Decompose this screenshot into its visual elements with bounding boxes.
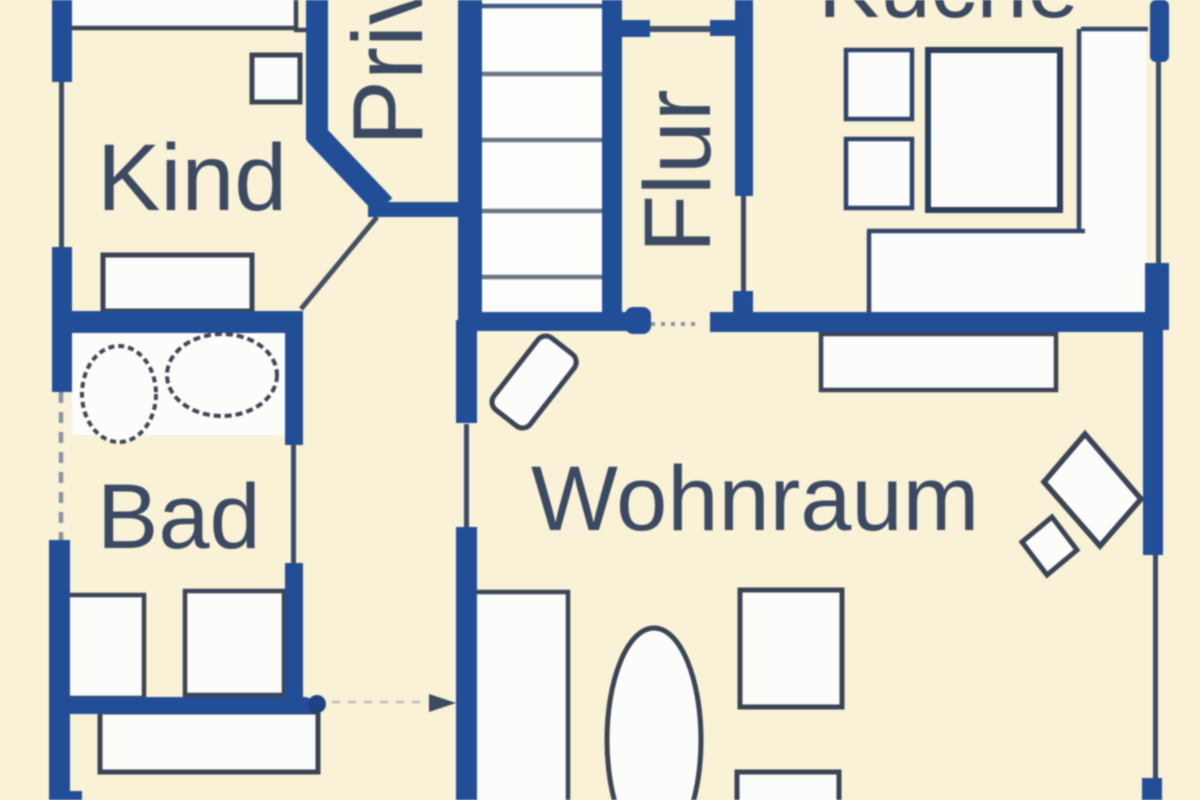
svg-text:Priv: Priv [332, 0, 443, 146]
svg-text:Flur: Flur [625, 89, 731, 253]
svg-text:Bad: Bad [97, 466, 261, 568]
svg-text:Küche: Küche [818, 0, 1079, 37]
svg-text:Wohnraum: Wohnraum [531, 448, 979, 550]
svg-text:Kind: Kind [97, 125, 287, 231]
